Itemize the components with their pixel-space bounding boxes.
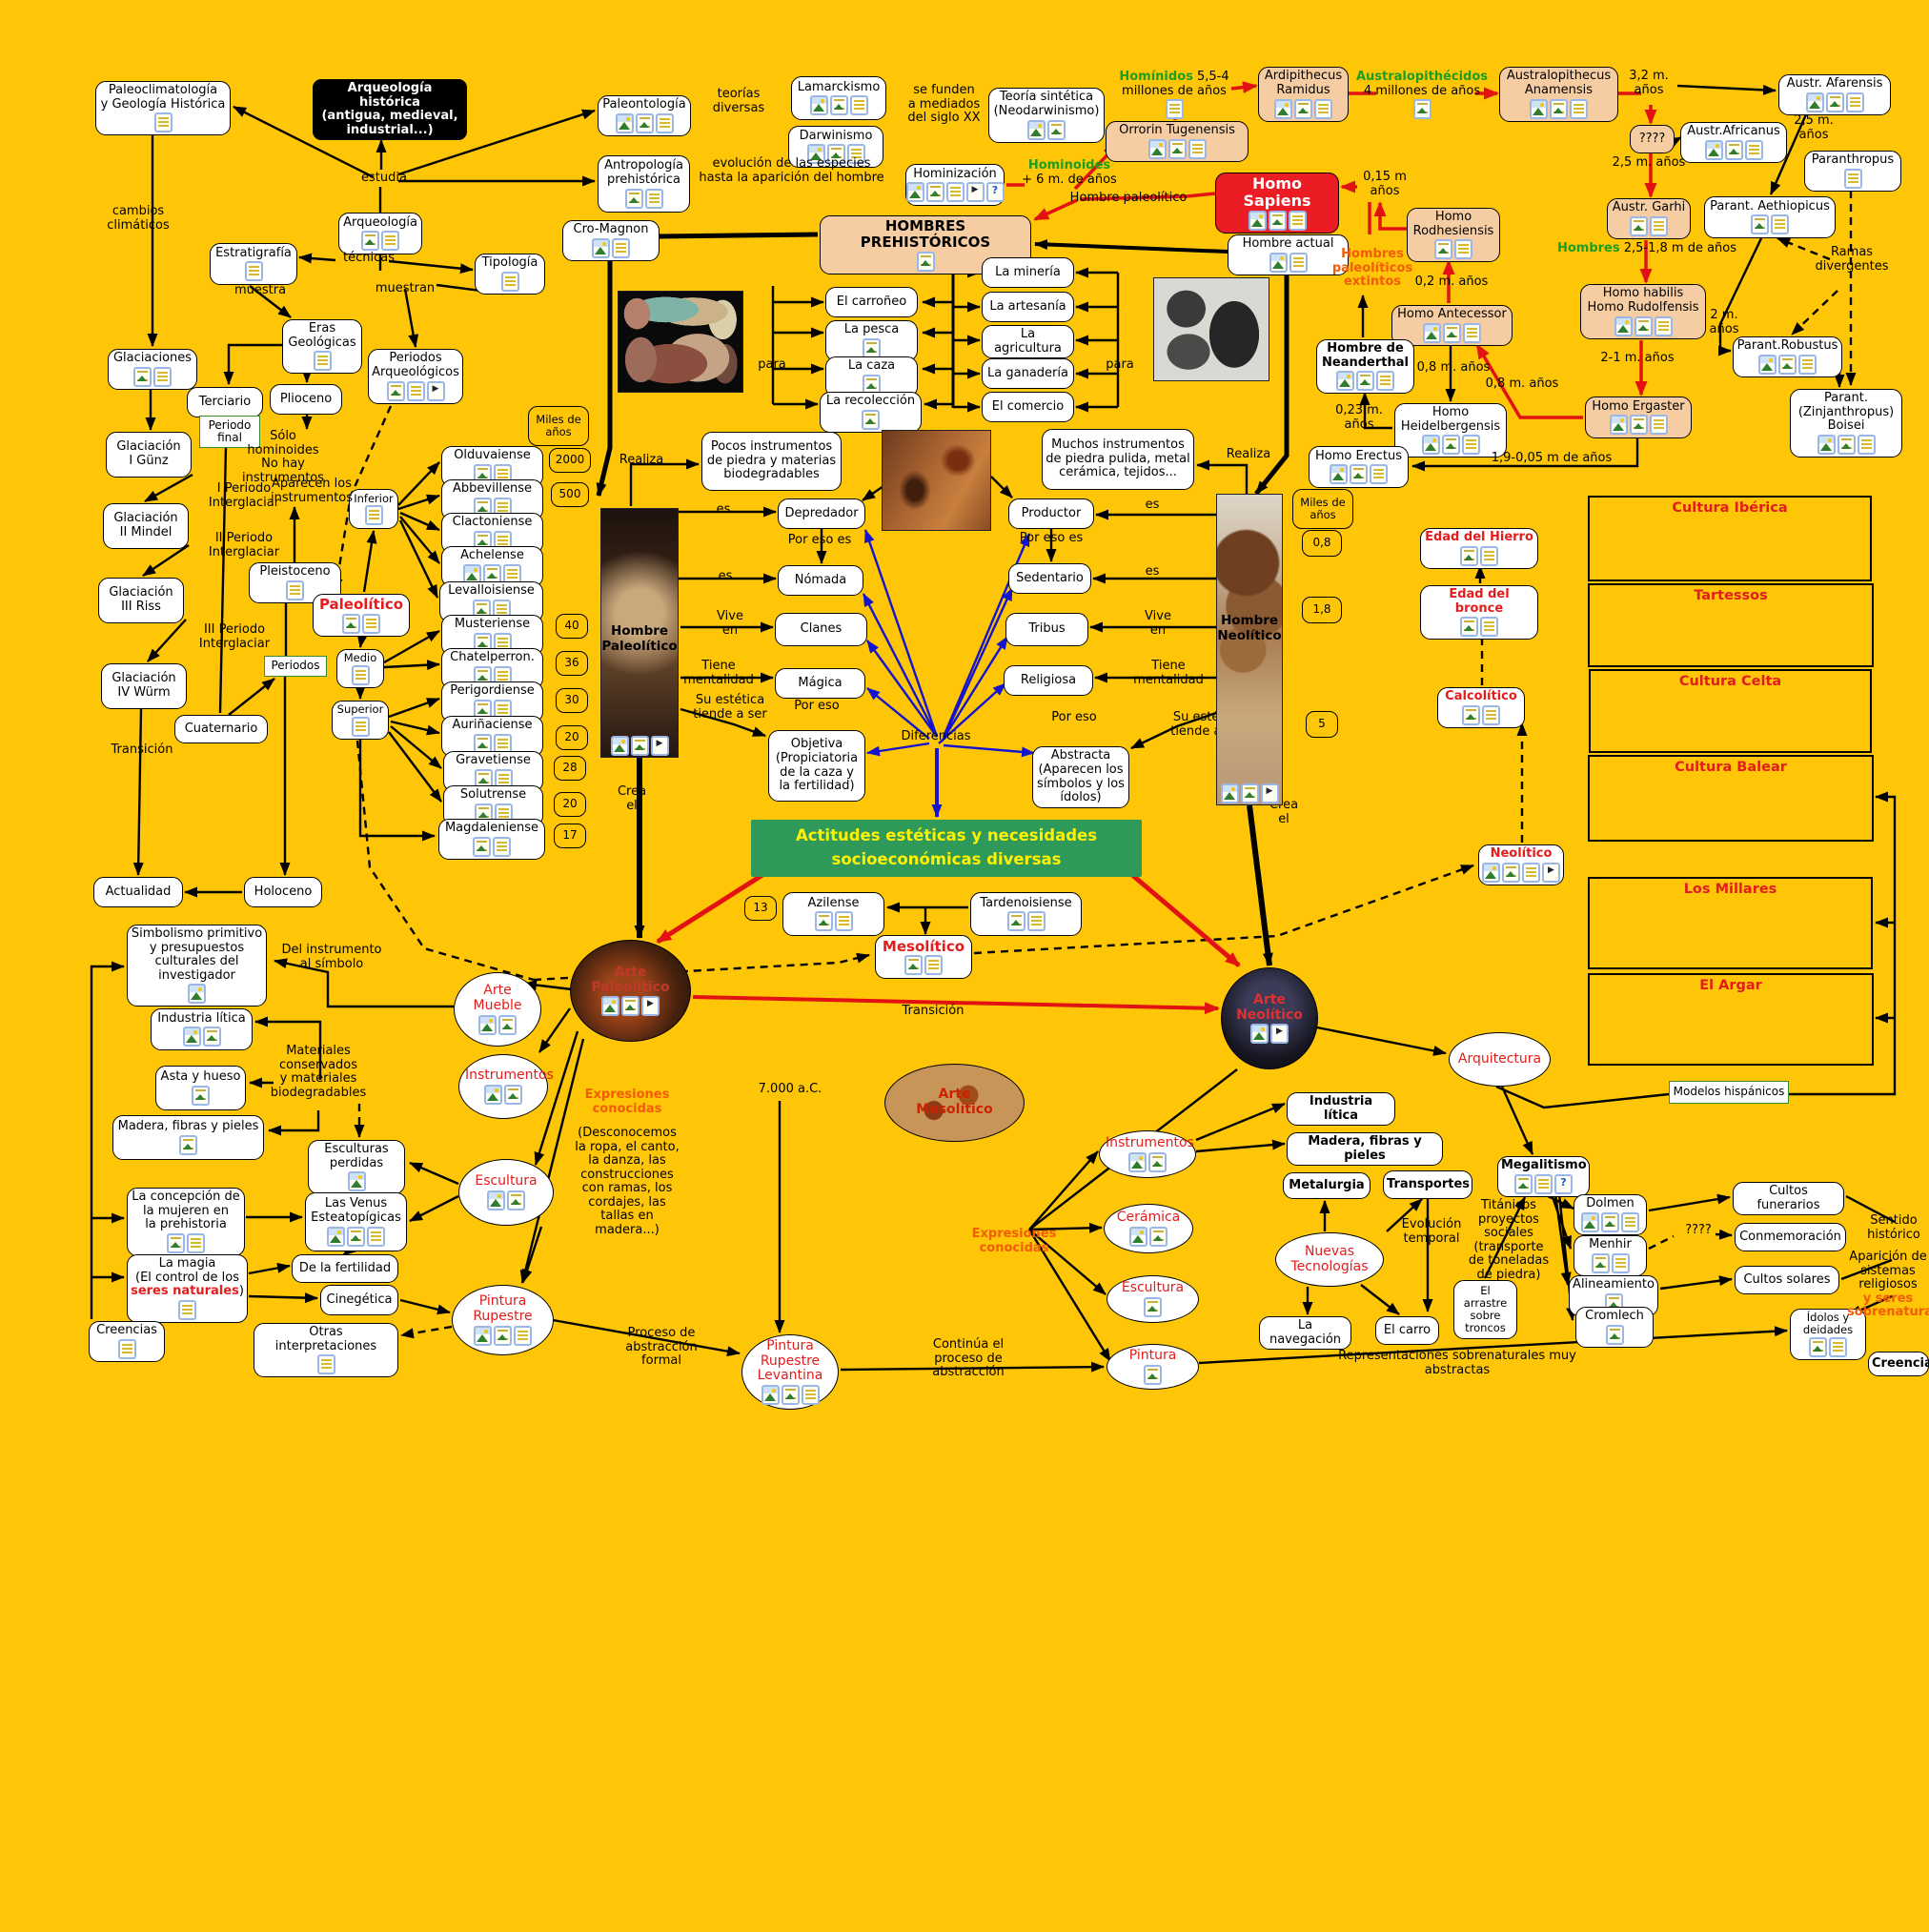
glaciacion-gunz[interactable]: GlaciaciónI Günz	[106, 432, 192, 478]
parant-boisei[interactable]: Parant.(Zinjanthropus)Boisei	[1790, 389, 1902, 458]
image-icon[interactable]	[1705, 140, 1723, 160]
pill-36[interactable]: 36	[556, 651, 588, 676]
picture-document-icon[interactable]	[1294, 99, 1312, 119]
document-icon[interactable]	[1454, 239, 1472, 259]
magica[interactable]: Mágica	[775, 668, 865, 699]
document-icon[interactable]	[1314, 99, 1332, 119]
image-icon[interactable]	[1128, 1152, 1147, 1172]
document-icon[interactable]	[1482, 705, 1500, 725]
homo-heidelbergensis[interactable]: HomoHeidelbergensis	[1394, 403, 1507, 458]
el-carro[interactable]: El carro	[1375, 1316, 1439, 1345]
australopithecus-anamensis[interactable]: AustralopithecusAnamensis	[1499, 67, 1618, 122]
image-icon[interactable]	[616, 113, 634, 133]
depredador[interactable]: Depredador	[778, 498, 865, 529]
image-icon[interactable]	[1530, 99, 1548, 119]
image-icon[interactable]	[1422, 435, 1440, 455]
cultos-solares[interactable]: Cultos solares	[1735, 1266, 1839, 1294]
holoceno[interactable]: Holoceno	[244, 877, 322, 907]
picture-document-icon[interactable]	[498, 1015, 517, 1035]
picture-document-icon[interactable]	[1635, 316, 1653, 336]
picture-document-icon[interactable]	[1007, 911, 1025, 931]
austr-afarensis[interactable]: Austr. Afarensis	[1778, 74, 1891, 115]
document-icon[interactable]	[1798, 355, 1817, 375]
media-icon[interactable]	[1261, 783, 1279, 803]
medio[interactable]: Medio	[336, 649, 384, 688]
document-icon[interactable]	[493, 837, 511, 857]
document-icon[interactable]	[1480, 617, 1498, 637]
document-icon[interactable]	[1289, 253, 1308, 273]
conmemoracion[interactable]: Conmemoración	[1735, 1223, 1846, 1251]
pill-500[interactable]: 500	[551, 482, 589, 507]
document-icon[interactable]	[1745, 140, 1763, 160]
picture-document-icon[interactable]	[387, 381, 405, 401]
picture-document-icon[interactable]	[1462, 705, 1480, 725]
document-icon[interactable]	[1829, 1337, 1847, 1357]
document-icon[interactable]	[802, 1385, 820, 1405]
concepcion-mujer[interactable]: La concepción dela mujeren enla prehisto…	[127, 1188, 245, 1256]
image-icon[interactable]	[1249, 211, 1267, 231]
nuevas-tecnologias[interactable]: NuevasTecnologías	[1275, 1232, 1384, 1287]
creencias-izq[interactable]: Creencias	[89, 1321, 165, 1362]
la-recoleccion[interactable]: La recolección	[820, 392, 922, 433]
tribus[interactable]: Tribus	[1005, 613, 1088, 646]
el-comercio[interactable]: El comercio	[982, 392, 1074, 422]
document-icon[interactable]	[381, 231, 399, 251]
escultura-der[interactable]: Escultura	[1107, 1275, 1199, 1323]
picture-document-icon[interactable]	[1047, 120, 1066, 140]
document-icon[interactable]	[1522, 863, 1540, 883]
document-icon[interactable]	[645, 189, 663, 209]
parant-aethiopicus[interactable]: Parant. Aethiopicus	[1704, 196, 1836, 238]
image-icon[interactable]	[1336, 371, 1354, 391]
periodos-arqueologicos[interactable]: PeriodosArqueológicos	[368, 349, 463, 404]
document-icon[interactable]	[365, 505, 383, 525]
document-icon[interactable]	[1188, 139, 1207, 159]
glaciacion-riss[interactable]: GlaciaciónIII Riss	[98, 578, 184, 623]
picture-document-icon[interactable]	[863, 338, 881, 358]
document-icon[interactable]	[501, 272, 519, 292]
pill-30[interactable]: 30	[556, 688, 588, 713]
image-icon[interactable]	[1614, 316, 1633, 336]
la-navegacion[interactable]: La navegación	[1259, 1316, 1351, 1350]
azilense[interactable]: Azilense	[782, 892, 884, 936]
picture-document-icon[interactable]	[862, 410, 880, 430]
picture-document-icon[interactable]	[1148, 1152, 1167, 1172]
image-icon[interactable]	[1482, 863, 1500, 883]
document-icon[interactable]	[154, 112, 173, 132]
picture-document-icon[interactable]	[621, 996, 640, 1016]
glaciacion-mindel[interactable]: GlaciaciónII Mindel	[103, 503, 189, 549]
document-icon[interactable]	[1621, 1212, 1639, 1232]
picture-document-icon[interactable]	[1751, 214, 1769, 234]
homo-sapiens[interactable]: Homo Sapiens	[1215, 173, 1339, 234]
document-icon[interactable]	[153, 367, 172, 387]
image-icon[interactable]	[327, 1227, 345, 1247]
image-icon[interactable]	[761, 1385, 780, 1405]
arte-mesolitico[interactable]: ArteMesolítico	[884, 1064, 1025, 1142]
document-icon[interactable]	[1844, 169, 1862, 189]
image-icon[interactable]	[1610, 415, 1628, 435]
picture-document-icon[interactable]	[1241, 783, 1259, 803]
image-icon[interactable]	[1758, 355, 1777, 375]
los-millares[interactable]: Los Millares	[1588, 877, 1873, 969]
document-icon[interactable]	[1370, 464, 1388, 484]
paleontologia[interactable]: Paleontología	[598, 95, 691, 136]
picture-document-icon[interactable]	[1778, 355, 1797, 375]
image-icon[interactable]	[1806, 92, 1824, 112]
modelos-hispanicos[interactable]: Modelos hispánicos	[1669, 1081, 1789, 1104]
picture-document-icon[interactable]	[1460, 617, 1478, 637]
actitudes-esteticas[interactable]: Actitudes estéticas y necesidadessocioec…	[751, 820, 1142, 877]
pill-08[interactable]: 0,8	[1302, 530, 1342, 557]
image-icon[interactable]	[906, 182, 924, 202]
document-icon[interactable]	[1858, 435, 1876, 455]
mesolitico[interactable]: Mesolítico	[875, 935, 972, 979]
el-arrastre[interactable]: Elarrastresobretroncos	[1453, 1280, 1517, 1339]
picture-document-icon[interactable]	[1413, 99, 1432, 119]
parant-robustus[interactable]: Parant.Robustus	[1733, 336, 1842, 377]
picture-document-icon[interactable]	[631, 736, 649, 756]
la-magia[interactable]: La magia(El control de losseres naturale…	[127, 1254, 248, 1323]
image-icon[interactable]	[183, 1027, 201, 1047]
document-icon[interactable]	[245, 261, 263, 281]
document-icon[interactable]	[187, 1233, 205, 1253]
paranthropus[interactable]: Paranthropus	[1804, 151, 1901, 192]
terciario[interactable]: Terciario	[187, 387, 263, 417]
orrorin-tugenensis[interactable]: Orrorin Tugenensis	[1106, 121, 1249, 162]
image-icon[interactable]	[487, 1190, 505, 1210]
plioceno[interactable]: Plioceno	[270, 384, 342, 415]
picture-document-icon[interactable]	[1550, 99, 1568, 119]
religiosa[interactable]: Religiosa	[1004, 665, 1093, 696]
picture-document-icon[interactable]	[1725, 140, 1743, 160]
image-icon[interactable]	[474, 1326, 492, 1346]
escultura-izq[interactable]: Escultura	[458, 1159, 554, 1226]
picture-document-icon[interactable]	[473, 837, 491, 857]
document-icon[interactable]	[1655, 316, 1673, 336]
document-icon[interactable]	[1166, 99, 1184, 119]
menhir[interactable]: Menhir	[1574, 1235, 1647, 1276]
abstracta[interactable]: Abstracta(Aparecen lossímbolos y losídol…	[1032, 746, 1129, 808]
instrumentos-izq[interactable]: Instrumentos	[458, 1054, 548, 1119]
megalitismo[interactable]: Megalitismo	[1497, 1156, 1590, 1197]
arte-neolitico[interactable]: ArteNeolítico	[1221, 967, 1318, 1069]
cultos-funerarios[interactable]: Cultos funerarios	[1733, 1182, 1844, 1215]
document-icon[interactable]	[1612, 1253, 1630, 1273]
picture-document-icon[interactable]	[1502, 863, 1520, 883]
picture-document-icon[interactable]	[1168, 139, 1187, 159]
industria-litica-der[interactable]: Industria lítica	[1287, 1092, 1395, 1126]
document-icon[interactable]	[367, 1227, 385, 1247]
edad-del-bronce[interactable]: Edad del bronce	[1420, 585, 1538, 640]
picture-document-icon[interactable]	[926, 182, 944, 202]
picture-document-icon[interactable]	[342, 614, 360, 634]
miles-anos-der[interactable]: Miles deaños	[1292, 489, 1353, 529]
picture-document-icon[interactable]	[830, 95, 848, 115]
ardipithecus-ramidus[interactable]: ArdipithecusRamidus	[1258, 67, 1349, 122]
paleoclimatologia[interactable]: Paleoclimatologíay Geología Histórica	[95, 81, 231, 135]
austr-garhi[interactable]: Austr. Garhi	[1607, 198, 1691, 239]
homo-rodhesiensis[interactable]: HomoRodhesiensis	[1407, 208, 1500, 262]
lamarckismo[interactable]: Lamarckismo	[791, 76, 886, 120]
simbolismo[interactable]: Simbolismo primitivoy presupuestoscultur…	[127, 925, 267, 1007]
media-icon[interactable]	[651, 736, 669, 756]
document-icon[interactable]	[352, 717, 370, 737]
industria-litica-izq[interactable]: Industria lítica	[151, 1008, 253, 1050]
picture-document-icon[interactable]	[1601, 1212, 1619, 1232]
instrumentos-der[interactable]: Instrumentos	[1099, 1130, 1196, 1178]
homo-erectus[interactable]: Homo Erectus	[1309, 446, 1409, 488]
picture-document-icon[interactable]	[636, 113, 654, 133]
de-la-fertilidad[interactable]: De la fertilidad	[292, 1254, 398, 1283]
document-icon[interactable]	[286, 580, 304, 600]
arqueologia-historica[interactable]: Arqueología histórica(antigua, medieval,…	[313, 79, 467, 140]
image-icon[interactable]	[1817, 435, 1836, 455]
estratigrafia[interactable]: Estratigrafía	[210, 243, 297, 285]
creencias-der[interactable]: Creencias	[1868, 1352, 1929, 1376]
document-icon[interactable]	[835, 911, 853, 931]
neolitico[interactable]: Neolítico	[1478, 844, 1564, 885]
la-pesca[interactable]: La pesca	[825, 320, 918, 361]
pill-40[interactable]: 40	[556, 614, 588, 639]
miles-anos-izq[interactable]: Miles deaños	[528, 406, 589, 446]
document-icon[interactable]	[1570, 99, 1588, 119]
image-icon[interactable]	[1330, 464, 1348, 484]
transportes[interactable]: Transportes	[1383, 1170, 1472, 1199]
pill-18[interactable]: 1,8	[1302, 597, 1342, 623]
image-icon[interactable]	[611, 736, 629, 756]
image-icon[interactable]	[810, 95, 828, 115]
nomada[interactable]: Nómada	[778, 565, 863, 596]
picture-document-icon[interactable]	[179, 1135, 197, 1155]
document-icon[interactable]	[612, 238, 630, 258]
media-icon[interactable]	[1270, 1024, 1289, 1044]
pintura-rupestre-levantina[interactable]: PinturaRupestreLevantina	[741, 1334, 839, 1410]
document-icon[interactable]	[514, 1326, 532, 1346]
picture-document-icon[interactable]	[494, 1326, 512, 1346]
image-icon[interactable]	[1250, 1024, 1269, 1044]
tardenoisiense[interactable]: Tardenoisiense	[970, 892, 1082, 936]
document-icon[interactable]	[656, 113, 674, 133]
pill-5[interactable]: 5	[1306, 711, 1338, 738]
actualidad[interactable]: Actualidad	[93, 877, 183, 907]
cromlech[interactable]: Cromlech	[1575, 1307, 1654, 1348]
picture-document-icon[interactable]	[507, 1190, 525, 1210]
document-icon[interactable]	[1289, 211, 1307, 231]
metalurgia[interactable]: Metalurgia	[1283, 1172, 1371, 1199]
document-icon[interactable]	[407, 381, 425, 401]
picture-document-icon[interactable]	[504, 1085, 522, 1105]
venus-esteatopigicas[interactable]: Las VenusEsteatopígicas	[305, 1192, 407, 1251]
image-icon[interactable]	[478, 1015, 497, 1035]
media-icon[interactable]	[966, 182, 985, 202]
document-icon[interactable]	[317, 1354, 335, 1374]
tartessos[interactable]: Tartessos	[1588, 583, 1874, 667]
paleolitico[interactable]: Paleolítico	[313, 594, 410, 637]
image-icon[interactable]	[592, 238, 610, 258]
cuaternario[interactable]: Cuaternario	[174, 715, 268, 743]
document-icon[interactable]	[1534, 1174, 1553, 1194]
image-icon[interactable]	[1274, 99, 1292, 119]
eras-geologicas[interactable]: ErasGeológicas	[282, 319, 362, 374]
picture-document-icon[interactable]	[1442, 435, 1460, 455]
picture-document-icon[interactable]	[192, 1086, 210, 1106]
pill-20a[interactable]: 20	[556, 725, 588, 750]
question-icon[interactable]	[986, 182, 1005, 202]
picture-document-icon[interactable]	[1630, 415, 1648, 435]
picture-document-icon[interactable]	[361, 231, 379, 251]
image-icon[interactable]	[1129, 1227, 1147, 1247]
picture-document-icon[interactable]	[1434, 239, 1452, 259]
document-icon[interactable]	[1846, 92, 1864, 112]
pill-20b[interactable]: 20	[554, 792, 586, 817]
superior[interactable]: Superior	[332, 701, 389, 740]
pill-17[interactable]: 17	[554, 824, 586, 848]
document-icon[interactable]	[1650, 415, 1668, 435]
media-icon[interactable]	[1542, 863, 1560, 883]
document-icon[interactable]	[1462, 435, 1480, 455]
picture-document-icon[interactable]	[347, 1227, 365, 1247]
cultura-iberica[interactable]: Cultura Ibérica	[1588, 496, 1872, 581]
media-icon[interactable]	[641, 996, 660, 1016]
document-icon[interactable]	[118, 1339, 136, 1359]
la-agricultura[interactable]: La agricultura	[982, 325, 1074, 358]
otras-interpretaciones[interactable]: Otras interpretaciones	[254, 1323, 398, 1377]
picture-document-icon[interactable]	[1149, 1227, 1168, 1247]
ceramica[interactable]: Cerámica	[1104, 1204, 1193, 1253]
pill-13[interactable]: 13	[744, 896, 777, 921]
cultura-celta[interactable]: Cultura Celta	[1589, 669, 1872, 753]
madera-fibras-izq[interactable]: Madera, fibras y pieles	[112, 1115, 264, 1160]
la-mineria[interactable]: La minería	[982, 257, 1074, 288]
arte-mueble[interactable]: ArteMueble	[454, 972, 541, 1047]
document-icon[interactable]	[1376, 371, 1394, 391]
image-icon[interactable]	[1581, 1212, 1599, 1232]
picture-document-icon[interactable]	[1460, 546, 1478, 566]
esculturas-perdidas[interactable]: Esculturasperdidas	[308, 1140, 405, 1194]
asta-y-hueso[interactable]: Asta y hueso	[155, 1066, 246, 1110]
document-icon[interactable]	[1480, 546, 1498, 566]
objetiva[interactable]: Objetiva(Propiciatoriade la caza yla fer…	[768, 730, 865, 802]
muchos-instrumentos[interactable]: Muchos instrumentosde piedra pulida, met…	[1042, 429, 1194, 490]
picture-document-icon[interactable]	[904, 955, 923, 975]
document-icon[interactable]	[352, 665, 370, 685]
dolmen[interactable]: Dolmen	[1574, 1194, 1647, 1235]
document-icon[interactable]	[362, 614, 380, 634]
document-icon[interactable]	[1027, 911, 1046, 931]
hominizacion[interactable]: Hominización	[905, 164, 1005, 206]
pocos-instrumentos[interactable]: Pocos instrumentosde piedra y materiasbi…	[701, 432, 842, 491]
pill-2000[interactable]: 2000	[549, 448, 591, 473]
image-icon[interactable]	[601, 996, 619, 1016]
arte-paleolitico[interactable]: ArtePaleolítico	[570, 940, 691, 1042]
pintura-der[interactable]: Pintura	[1107, 1344, 1199, 1390]
edad-del-hierro[interactable]: Edad del Hierro	[1420, 528, 1538, 569]
arquitectura[interactable]: Arquitectura	[1449, 1032, 1551, 1087]
productor[interactable]: Productor	[1008, 498, 1094, 529]
unknown-hominid[interactable]: ????	[1630, 125, 1675, 153]
tipologia[interactable]: Tipología	[475, 254, 545, 295]
austr-africanus[interactable]: Austr.Africanus	[1680, 122, 1787, 163]
teoria-sintetica[interactable]: Teoría sintética(Neodarwinismo)	[988, 88, 1105, 143]
image-icon[interactable]	[348, 1171, 366, 1191]
sedentario[interactable]: Sedentario	[1008, 563, 1091, 594]
pintura-rupestre[interactable]: PinturaRupestre	[452, 1285, 554, 1355]
document-icon[interactable]	[1463, 323, 1481, 343]
picture-document-icon[interactable]	[133, 367, 152, 387]
clanes[interactable]: Clanes	[775, 613, 867, 646]
document-icon[interactable]	[924, 955, 943, 975]
glaciaciones[interactable]: Glaciaciones	[108, 349, 197, 390]
homo-antecessor[interactable]: Homo Antecessor	[1391, 305, 1513, 346]
picture-document-icon[interactable]	[1809, 1337, 1827, 1357]
image-icon[interactable]	[188, 984, 206, 1004]
cultura-balear[interactable]: Cultura Balear	[1588, 755, 1874, 842]
image-icon[interactable]	[1027, 120, 1046, 140]
image-icon[interactable]	[1148, 139, 1167, 159]
pill-28[interactable]: 28	[554, 756, 586, 781]
arqueologia[interactable]: Arqueología	[338, 213, 422, 254]
hombre-de-neanderthal[interactable]: Hombre deNeanderthal	[1316, 339, 1414, 394]
picture-document-icon[interactable]	[1144, 1365, 1162, 1385]
periodos[interactable]: Periodos	[264, 656, 327, 677]
picture-document-icon[interactable]	[1356, 371, 1374, 391]
picture-document-icon[interactable]	[782, 1385, 800, 1405]
cro-magnon[interactable]: Cro-Magnon	[562, 220, 660, 261]
madera-fibras-der[interactable]: Madera, fibras y pieles	[1287, 1132, 1443, 1166]
magdaleniense[interactable]: Magdaleniense	[438, 819, 545, 860]
picture-document-icon[interactable]	[1592, 1253, 1610, 1273]
image-icon[interactable]	[1221, 783, 1239, 803]
homo-habilis-rudolfensis[interactable]: Homo habilisHomo Rudolfensis	[1580, 284, 1706, 339]
image-icon[interactable]	[1269, 253, 1288, 273]
picture-document-icon[interactable]	[1269, 211, 1287, 231]
la-ganaderia[interactable]: La ganadería	[982, 358, 1074, 389]
picture-document-icon[interactable]	[1826, 92, 1844, 112]
question-icon[interactable]	[1554, 1174, 1573, 1194]
picture-document-icon[interactable]	[1144, 1297, 1162, 1317]
el-carroneo[interactable]: El carroñeo	[825, 287, 918, 317]
image-icon[interactable]	[1423, 323, 1441, 343]
cinegetica[interactable]: Cinegética	[320, 1285, 398, 1315]
picture-document-icon[interactable]	[625, 189, 643, 209]
antropologia-prehistorica[interactable]: Antropologíaprehistórica	[598, 155, 690, 213]
homo-ergaster[interactable]: Homo Ergaster	[1585, 397, 1692, 438]
document-icon[interactable]	[850, 95, 868, 115]
document-icon[interactable]	[314, 351, 332, 371]
picture-document-icon[interactable]	[167, 1233, 185, 1253]
picture-document-icon[interactable]	[815, 911, 833, 931]
glaciacion-wurm[interactable]: GlaciaciónIV Würm	[101, 663, 187, 709]
document-icon[interactable]	[946, 182, 964, 202]
picture-document-icon[interactable]	[203, 1027, 221, 1047]
la-artesania[interactable]: La artesanía	[982, 292, 1074, 322]
picture-document-icon[interactable]	[1630, 216, 1648, 236]
picture-document-icon[interactable]	[1514, 1174, 1533, 1194]
picture-document-icon[interactable]	[1838, 435, 1856, 455]
calcolitico[interactable]: Calcolítico	[1437, 687, 1525, 728]
image-icon[interactable]	[484, 1085, 502, 1105]
picture-document-icon[interactable]	[1443, 323, 1461, 343]
document-icon[interactable]	[1650, 216, 1668, 236]
document-icon[interactable]	[178, 1300, 196, 1320]
document-icon[interactable]	[1771, 214, 1789, 234]
media-icon[interactable]	[427, 381, 445, 401]
picture-document-icon[interactable]	[1350, 464, 1368, 484]
el-argar[interactable]: El Argar	[1588, 973, 1874, 1066]
picture-document-icon[interactable]	[917, 252, 935, 272]
picture-document-icon[interactable]	[1606, 1325, 1624, 1345]
